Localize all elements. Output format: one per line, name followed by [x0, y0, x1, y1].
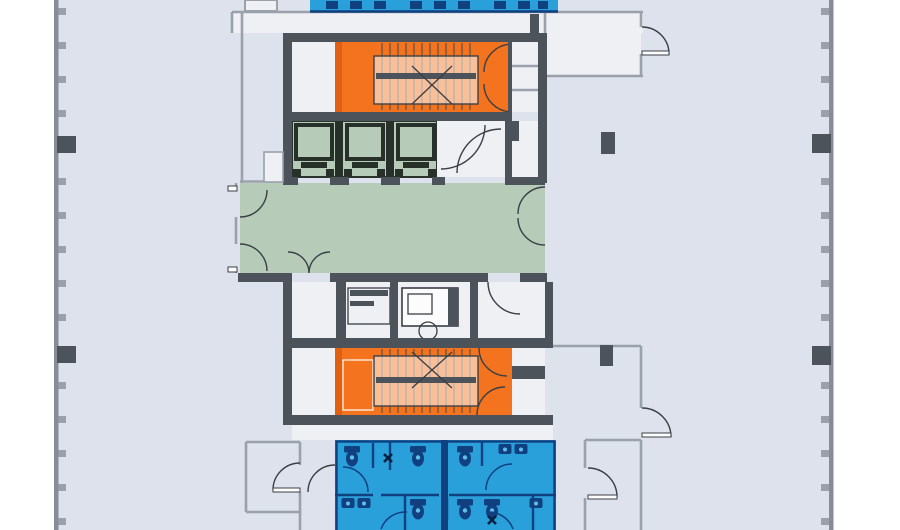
shaft-cell-south — [512, 348, 545, 415]
column-wall-west-2 — [57, 346, 76, 363]
elevator-shafts — [292, 121, 437, 177]
stairwell-north — [292, 42, 538, 112]
stair-handrail — [376, 73, 476, 79]
stair-handrail-2 — [376, 377, 476, 383]
curtain-wall-east — [829, 0, 834, 530]
corridor-closet — [264, 152, 283, 182]
sink-fixture — [515, 444, 528, 454]
elevator-bank — [292, 121, 538, 177]
wall-stub — [530, 14, 539, 33]
core-corridor-south — [292, 282, 336, 338]
stair-landing-west-2 — [292, 348, 335, 415]
south-corridor — [292, 425, 553, 440]
room-north-west-stub — [245, 0, 277, 11]
curtain-wall-west — [54, 0, 59, 530]
sink-fixture — [499, 444, 512, 454]
service-rooms — [292, 282, 545, 345]
column-interior-ne — [601, 132, 615, 154]
sink-fixture — [358, 498, 371, 508]
column-wall-east-2 — [812, 346, 831, 365]
stairwell-south — [292, 348, 545, 415]
sink-fixture — [342, 498, 355, 508]
floor-plan-canvas — [0, 0, 900, 530]
restroom-center-wall — [441, 440, 448, 530]
column-wall-east-1 — [812, 134, 831, 153]
floor-plan-drawing — [0, 0, 900, 530]
lobby-zone — [240, 183, 545, 273]
restrooms-south — [308, 440, 556, 530]
restrooms-north — [310, 0, 558, 12]
shaft-cells-north — [512, 42, 538, 112]
room-north-east — [545, 12, 641, 76]
sink-fixture — [530, 498, 543, 508]
column-wall-west-1 — [57, 136, 76, 153]
stair-landing-west — [292, 42, 335, 112]
elevator-lobby — [228, 182, 545, 274]
column-interior-se — [600, 345, 613, 366]
